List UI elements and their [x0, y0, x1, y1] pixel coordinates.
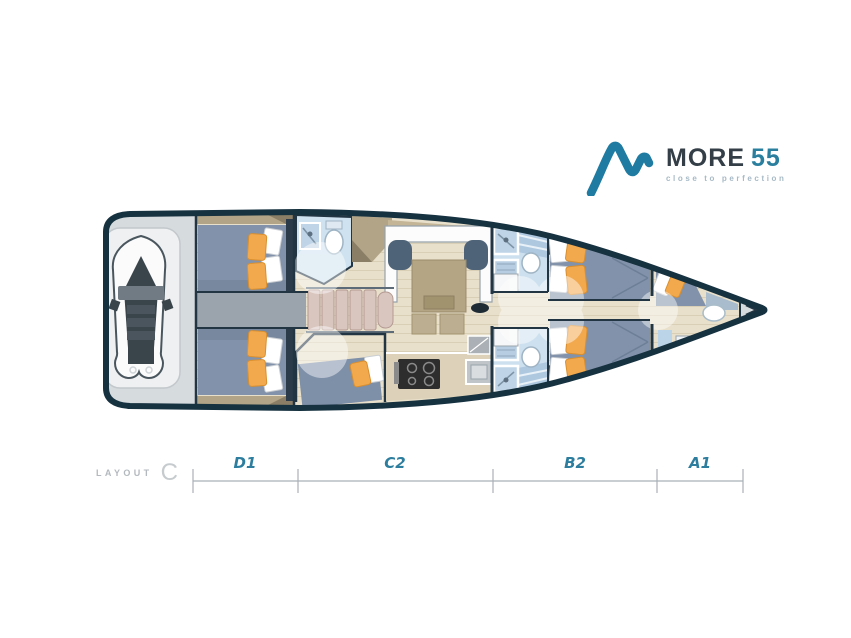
brand-name: MORE	[666, 144, 745, 172]
page-canvas: MORE55 close to perfection LAYOUT C D1 C…	[0, 0, 851, 638]
section-label-a1: A1	[689, 454, 711, 472]
stove	[398, 359, 440, 389]
layout-word: LAYOUT	[96, 468, 153, 478]
salon-seat	[440, 314, 464, 334]
bow-toilet	[703, 305, 725, 321]
layout-variant: C	[161, 461, 178, 485]
corner-cushion-right	[464, 240, 488, 270]
section-label-b2: B2	[564, 454, 586, 472]
companionway-stairs	[306, 288, 394, 332]
salon-seat	[412, 314, 436, 334]
brand-tagline: close to perfection	[666, 174, 787, 183]
section-label-c2: C2	[384, 454, 405, 472]
brand-logo: MORE55 close to perfection	[586, 132, 796, 198]
corner-cushion-left	[388, 240, 412, 270]
dimension-ruler	[193, 469, 743, 493]
aft-cabin-top	[196, 211, 294, 293]
aft-cabin-bottom	[196, 327, 294, 409]
centerline-handle	[471, 303, 489, 313]
layout-tag: LAYOUT C	[96, 461, 178, 485]
aft-corridor	[196, 293, 306, 327]
yacht-floorplan	[0, 0, 851, 638]
brand-model: 55	[751, 144, 781, 172]
section-label-d1: D1	[234, 454, 257, 472]
brand-logo-icon	[586, 140, 656, 196]
